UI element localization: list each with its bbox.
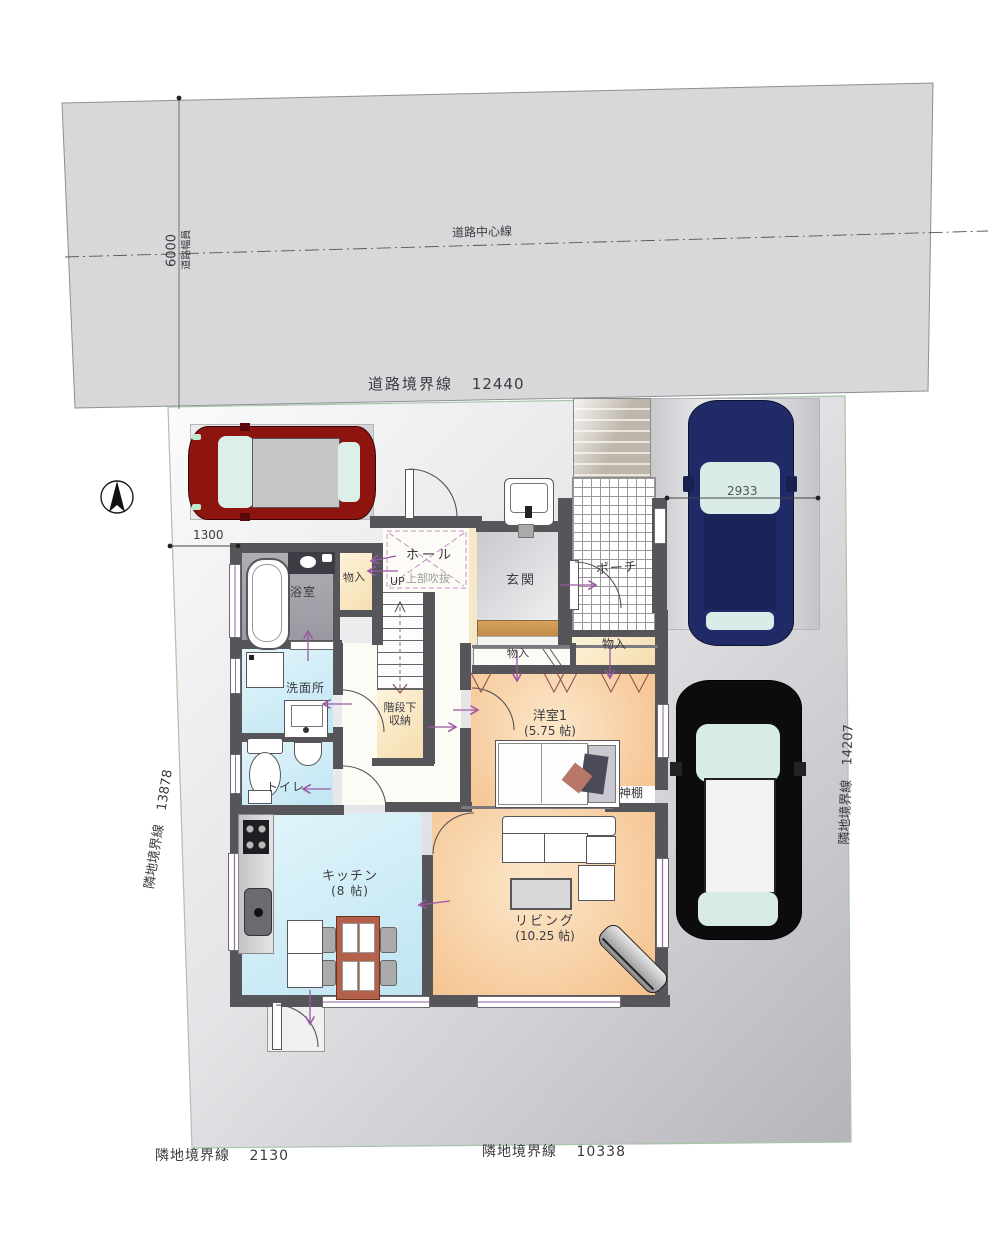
storage2-label: 物入 <box>507 647 530 661</box>
living-size: (10.25 帖) <box>495 930 595 944</box>
stairs-up-label: UP <box>390 576 405 589</box>
washroom-label: 洗面所 <box>286 682 325 696</box>
closet-door-chevrons <box>470 649 650 692</box>
kitchen-label: キッチン (8 帖) <box>305 870 395 899</box>
road-width-label: 道路幅員 <box>181 223 193 277</box>
hall-label: ホール <box>406 549 454 564</box>
western-room-size: (5.75 帖) <box>505 725 595 739</box>
under-stair-storage-label: 階段下 収納 <box>377 702 423 727</box>
porch-label: ポーチ <box>596 561 639 579</box>
parking-dim-left: 1300 <box>193 529 224 543</box>
bottom-right-boundary-value: 10338 <box>576 1144 626 1160</box>
plan-overlay <box>0 0 1000 1238</box>
site-plan: 道路中心線 6000 道路幅員 道路境界線 12440 1300 2933 隣地… <box>0 0 1000 1238</box>
kamidana-label: 神棚 <box>619 787 643 801</box>
kitchen-size: (8 帖) <box>305 885 395 899</box>
kitchen-name: キッチン <box>305 870 395 885</box>
void-above-label: 上部吹抜 <box>406 573 450 586</box>
road-boundary-label: 道路境界線 12440 <box>368 376 525 393</box>
entrance-label: 玄関 <box>506 574 536 589</box>
bottom-left-boundary-label: 隣地境界線 2130 <box>155 1148 289 1164</box>
road-boundary-value: 12440 <box>472 375 525 393</box>
living-name: リビング <box>495 915 595 930</box>
under-stair-line2: 収納 <box>377 715 423 728</box>
parking-dim-right: 2933 <box>727 485 758 499</box>
bath-label: 浴室 <box>290 586 316 600</box>
north-compass-icon <box>101 481 133 513</box>
storage3-label: 物入 <box>602 638 626 652</box>
bottom-left-boundary-text: 隣地境界線 <box>155 1148 230 1164</box>
western-room-label: 洋室1 (5.75 帖) <box>505 710 595 739</box>
western-room-name: 洋室1 <box>505 710 595 725</box>
living-label: リビング (10.25 帖) <box>495 915 595 944</box>
road-center-line-label: 道路中心線 <box>452 225 512 240</box>
flow-arrows <box>303 556 610 1024</box>
under-stair-line1: 階段下 <box>377 702 423 715</box>
bottom-right-boundary-label: 隣地境界線 10338 <box>482 1144 626 1160</box>
road-boundary-text: 道路境界線 <box>368 375 453 393</box>
bottom-left-boundary-value: 2130 <box>249 1148 289 1164</box>
road-width-value: 6000 <box>166 223 181 277</box>
right-boundary-value: 14207 <box>840 724 856 766</box>
storage1-label: 物入 <box>343 571 366 585</box>
bottom-right-boundary-text: 隣地境界線 <box>482 1144 557 1160</box>
right-boundary-text: 隣地境界線 <box>837 779 854 844</box>
dimension-lines <box>168 496 821 549</box>
toilet-label: トイレ <box>266 781 305 795</box>
stairs-up-arrow <box>393 602 407 693</box>
